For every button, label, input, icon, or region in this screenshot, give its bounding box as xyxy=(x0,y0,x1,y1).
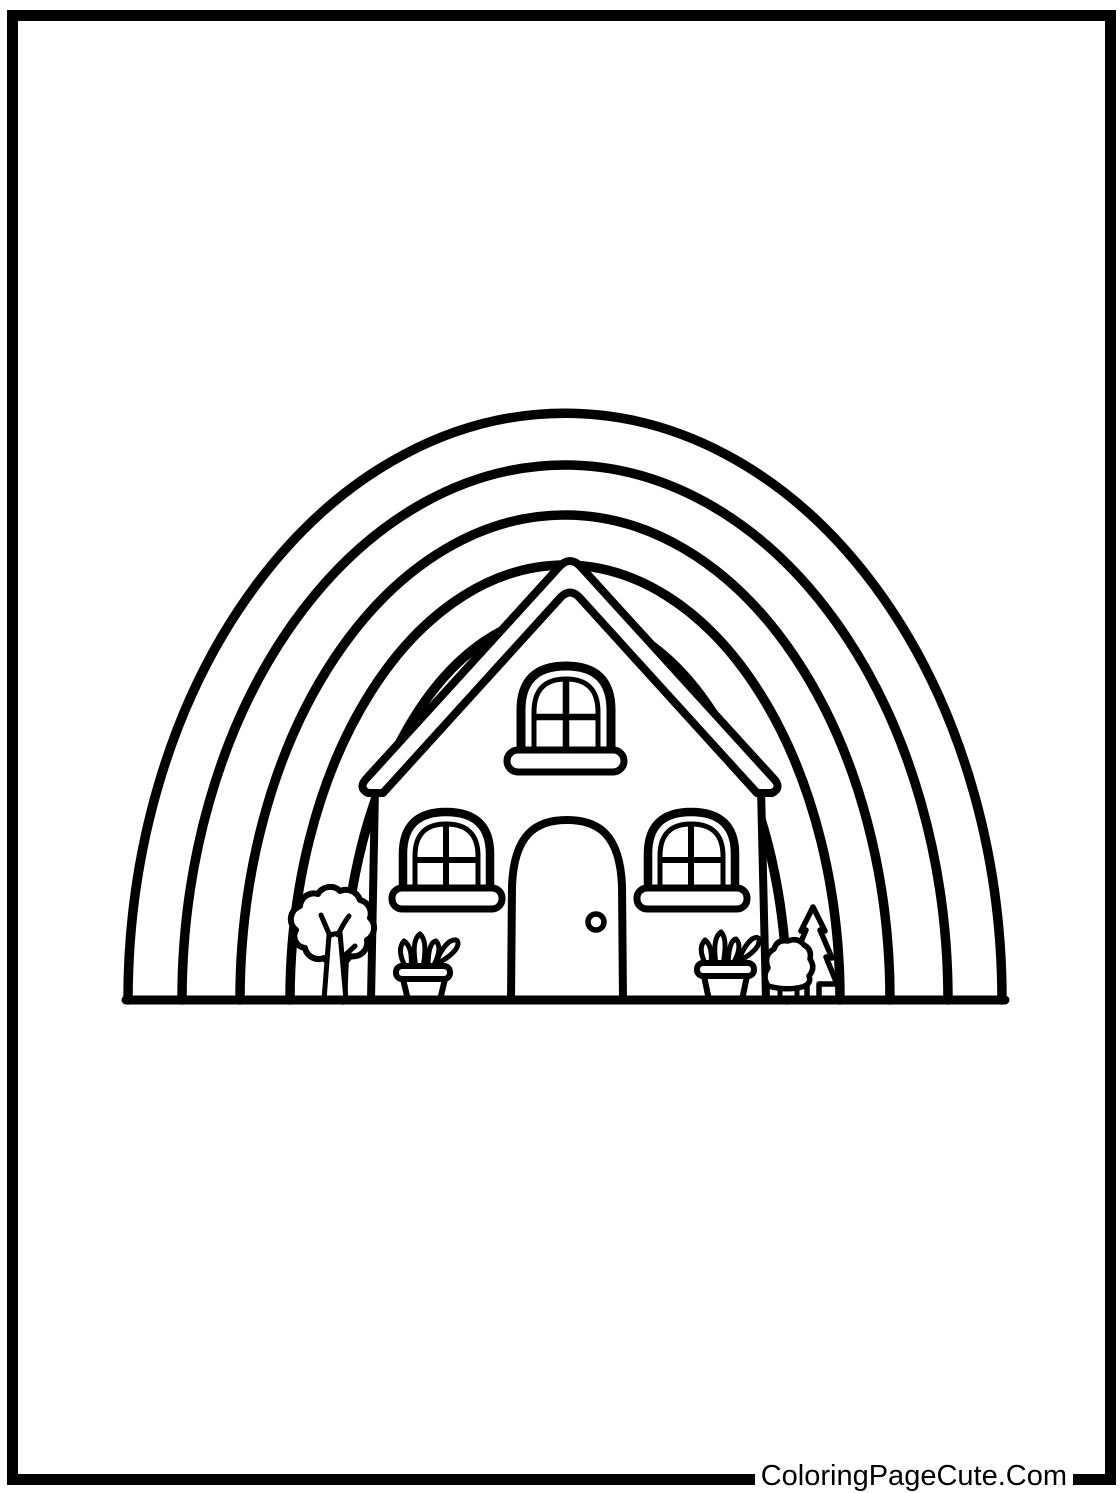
page-border xyxy=(7,10,1116,1485)
coloring-page: ColoringPageCute.Com xyxy=(0,0,1120,1493)
watermark: ColoringPageCute.Com xyxy=(755,1461,1073,1492)
